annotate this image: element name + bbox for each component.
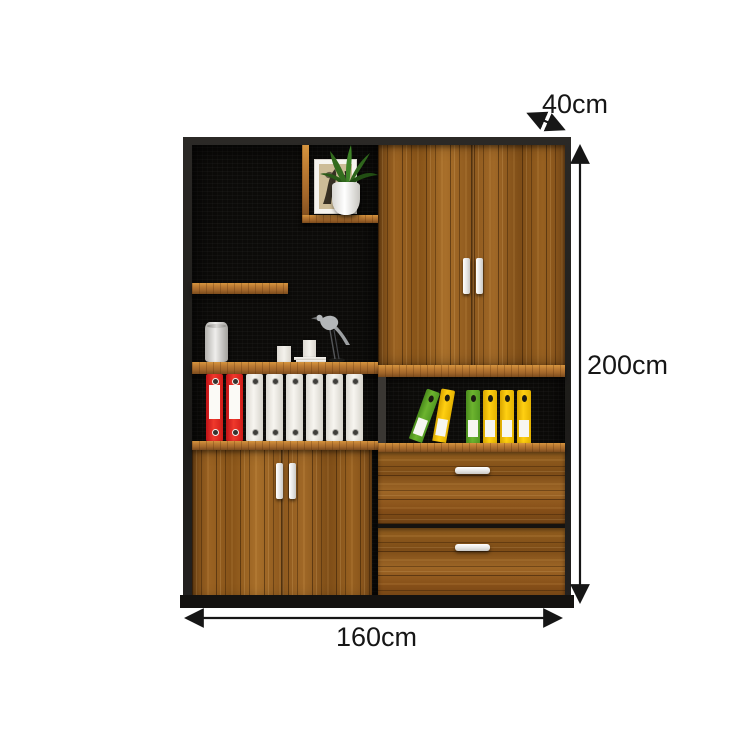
right-bay xyxy=(378,145,565,600)
binder-white xyxy=(266,374,283,441)
shelf xyxy=(192,362,378,374)
door-handle xyxy=(276,463,283,499)
binder-red xyxy=(206,374,223,441)
door-handle xyxy=(476,258,483,294)
binder-white xyxy=(286,374,303,441)
binder-white xyxy=(346,374,363,441)
drawer-handle xyxy=(455,467,490,474)
cabinet xyxy=(183,137,571,608)
cabinet-plinth xyxy=(180,595,574,608)
binder-red xyxy=(226,374,243,441)
cubby-frame-left xyxy=(302,145,309,223)
product-image-canvas: 40cm 200cm 160cm xyxy=(0,0,750,750)
binder-white xyxy=(246,374,263,441)
wall-shelf xyxy=(192,283,288,294)
binder-green xyxy=(466,390,480,443)
binder-yellow xyxy=(517,390,531,443)
upper-right-doors xyxy=(378,145,565,365)
right-binder-row xyxy=(378,377,565,443)
drawer-bottom xyxy=(378,528,565,600)
cubby-frame-bottom xyxy=(302,215,378,223)
binder-white xyxy=(306,374,323,441)
shelf xyxy=(192,441,378,450)
binder-white xyxy=(326,374,343,441)
ceramic-jar xyxy=(205,322,228,362)
shelf xyxy=(378,443,565,452)
white-box xyxy=(277,346,291,362)
door-handle xyxy=(289,463,296,499)
height-dimension-label: 200cm xyxy=(587,351,668,381)
depth-dimension-label: 40cm xyxy=(542,90,608,120)
drawer-top xyxy=(378,452,565,524)
drawer-handle xyxy=(455,544,490,551)
bird-sculpture xyxy=(310,303,352,363)
door-seam xyxy=(471,145,474,365)
binder-yellow xyxy=(500,390,514,443)
left-bay xyxy=(192,145,378,600)
left-binder-row xyxy=(192,374,378,441)
door-handle xyxy=(463,258,470,294)
lower-left-doors xyxy=(192,450,372,600)
binder-yellow xyxy=(483,390,497,443)
shelf xyxy=(378,365,565,377)
width-dimension-label: 160cm xyxy=(336,623,417,653)
white-vase xyxy=(332,182,360,215)
